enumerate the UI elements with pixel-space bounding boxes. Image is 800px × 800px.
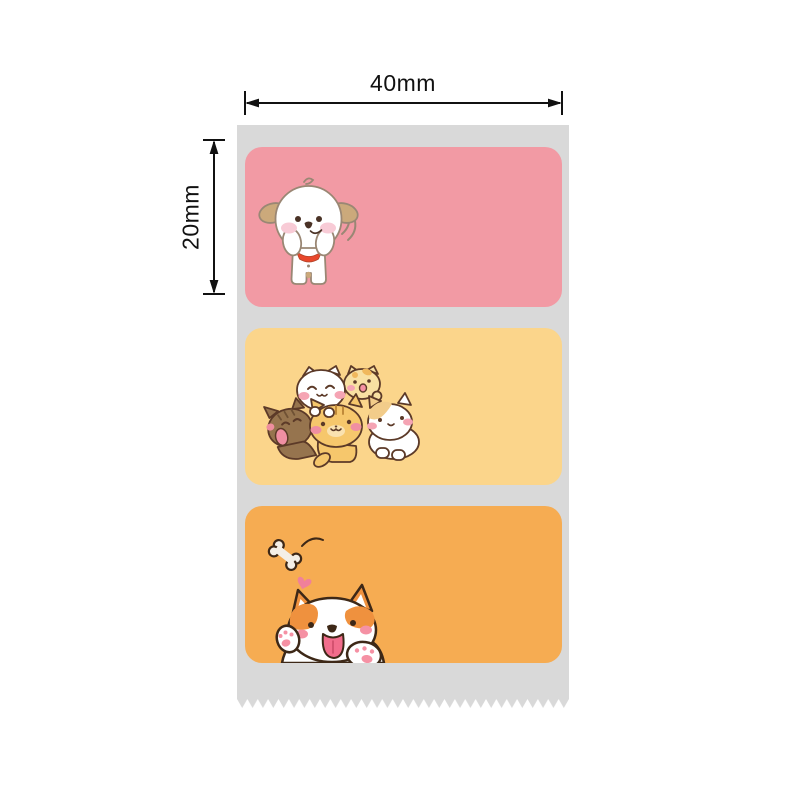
width-dimension-arrow	[239, 88, 569, 118]
white-cream-kitten	[367, 393, 419, 460]
cream-kitten	[344, 366, 382, 401]
bone-icon	[267, 538, 303, 572]
product-figure: 40mm 20mm	[0, 0, 800, 800]
motion-line	[302, 538, 323, 546]
height-dimension-arrow	[201, 137, 227, 297]
label-sticker-corgi	[245, 506, 562, 663]
label-sticker-puppy	[245, 147, 562, 307]
corgi-illustration	[268, 533, 398, 663]
orange-tabby-kitten	[310, 394, 362, 470]
kittens-illustration	[266, 366, 422, 468]
puppy-illustration	[257, 176, 363, 291]
tear-edge-zigzag	[237, 699, 569, 709]
heart-icon	[296, 576, 313, 591]
label-sticker-cats	[245, 328, 562, 485]
